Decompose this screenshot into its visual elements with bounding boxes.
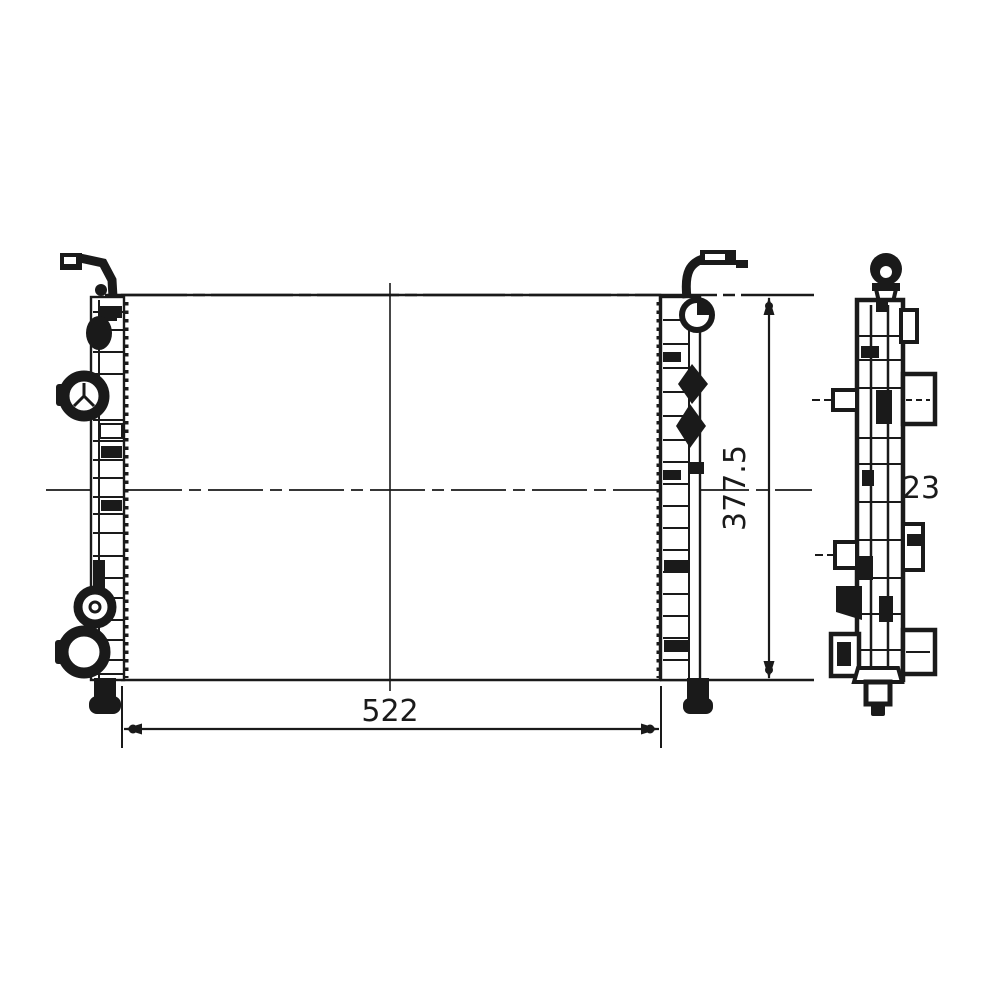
top-right-bracket [686, 250, 748, 298]
dimension-width: 522 [122, 686, 661, 748]
side-bottom-stub [854, 668, 902, 716]
top-left-bracket [60, 253, 113, 297]
width-dimension-label: 522 [361, 694, 418, 729]
upper-hose-fitting [56, 376, 104, 416]
lower-hose-fitting [55, 631, 105, 673]
lower-fitting-small [78, 590, 112, 624]
radiator-front-view: 522 377.5 [46, 250, 814, 748]
side-left-brackets [812, 390, 862, 676]
height-dimension-label: 377.5 [718, 445, 753, 531]
right-top-boss [682, 300, 712, 330]
right-bottom-stub [683, 678, 713, 714]
technical-drawing-page: 522 377.5 [0, 0, 1000, 1000]
depth-dimension-label: 23 [902, 471, 940, 506]
radiator-side-view: 23 [812, 253, 940, 716]
filler-cap [870, 253, 902, 302]
left-tank [55, 253, 126, 714]
side-tank-body [857, 300, 903, 680]
dimension-height: 377.5 [718, 297, 775, 679]
left-bottom-stub [89, 678, 121, 714]
radiator-technical-drawing: 522 377.5 [0, 0, 1000, 1000]
